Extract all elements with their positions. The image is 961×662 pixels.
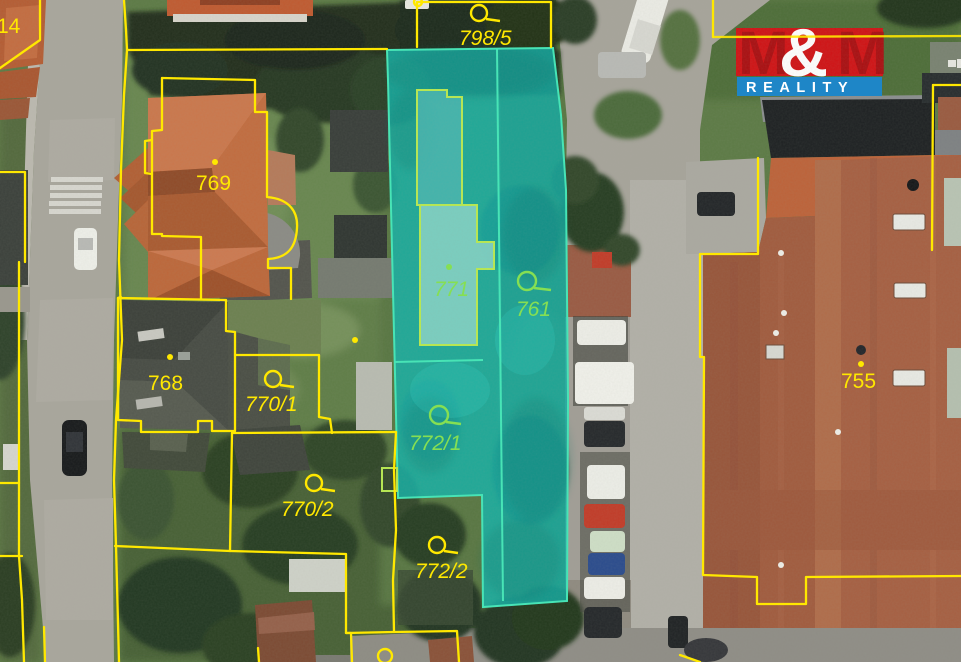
svg-text:768: 768 <box>148 372 183 395</box>
svg-text:REALITY: REALITY <box>746 80 854 96</box>
svg-text:769: 769 <box>196 172 231 195</box>
svg-text:770/1: 770/1 <box>245 393 298 416</box>
svg-text:14: 14 <box>0 15 21 38</box>
svg-text:770/2: 770/2 <box>281 498 334 521</box>
svg-text:798/5: 798/5 <box>459 27 512 50</box>
svg-text:772/2: 772/2 <box>415 560 468 583</box>
svg-text:755: 755 <box>841 370 876 393</box>
